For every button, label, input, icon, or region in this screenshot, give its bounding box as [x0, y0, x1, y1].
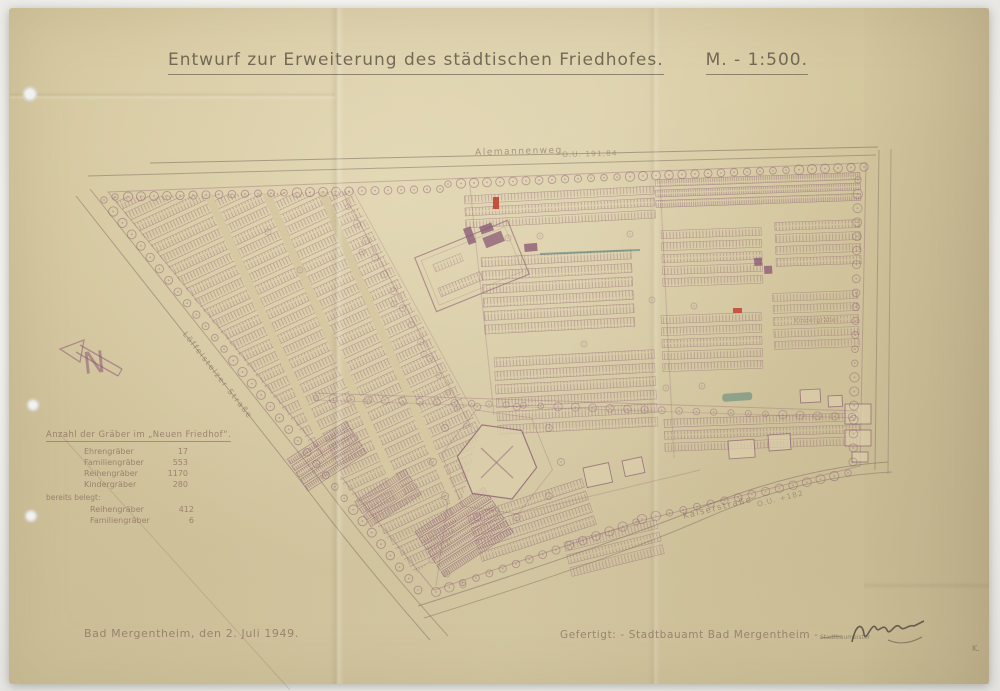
punch-hole: [27, 399, 39, 411]
legend-row-label: Familiengräber: [84, 457, 144, 468]
scanned-plan-page: N Entwurf zur Erweiterung des städtische…: [0, 0, 1000, 691]
grave-count-legend: Anzahl der Gräber im „Neuen Friedhof“. E…: [46, 430, 226, 526]
legend-row-value: 412: [179, 504, 194, 515]
legend-row-value: 1170: [168, 468, 188, 479]
legend-row-value: 280: [173, 479, 188, 490]
drawing-scale: M. - 1:500.: [706, 50, 808, 75]
legend-row-label: Reihengräber: [84, 468, 138, 479]
punch-hole: [25, 510, 37, 522]
svg-text:N: N: [81, 345, 107, 382]
site-plan-drawing: N: [0, 0, 1000, 691]
legend-row: Reihengräber1170: [84, 468, 188, 479]
drawing-title: Entwurf zur Erweiterung des städtischen …: [168, 50, 664, 75]
grave-field-label: Kindergräber: [794, 317, 839, 325]
legend-rows: Ehrengräber17Familiengräber553Reihengräb…: [84, 446, 188, 490]
legend-row-value: 17: [178, 446, 188, 457]
legend-heading: Anzahl der Gräber im „Neuen Friedhof“.: [46, 430, 231, 442]
legend-row: Familiengräber553: [84, 457, 188, 468]
legend-row-label: Familiengräber: [90, 515, 150, 526]
drawing-title-row: Entwurf zur Erweiterung des städtischen …: [168, 50, 808, 75]
legend-note-rows: Reihengräber412Familiengräber6: [90, 504, 194, 526]
punch-hole: [23, 87, 37, 101]
made-by-line: Gefertigt: - Stadtbauamt Bad Mergentheim…: [560, 629, 819, 641]
legend-note: bereits belegt:: [46, 493, 226, 503]
street-elevation-top: O.U. 191,84: [562, 149, 618, 159]
legend-row-value: 553: [173, 457, 188, 468]
legend-row: Ehrengräber17: [84, 446, 188, 457]
legend-row-value: 6: [189, 515, 194, 526]
legend-row-label: Reihengräber: [90, 504, 144, 515]
legend-row-label: Ehrengräber: [84, 446, 134, 457]
legend-row: Kindergräber280: [84, 479, 188, 490]
legend-row: Reihengräber412: [90, 504, 194, 515]
corner-mark: K.: [972, 644, 980, 653]
place-date-line: Bad Mergentheim, den 2. Juli 1949.: [84, 627, 299, 640]
signature-role-label: Stadtbaumeister: [820, 634, 870, 641]
legend-row: Familiengräber6: [90, 515, 194, 526]
legend-row-label: Kindergräber: [84, 479, 136, 490]
